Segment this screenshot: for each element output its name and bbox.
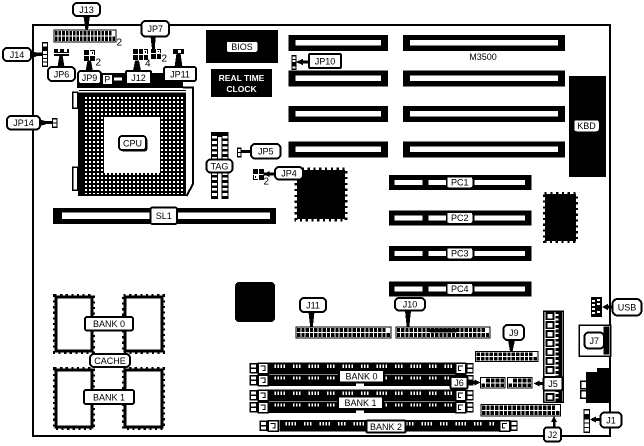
svg-text:JP9: JP9 xyxy=(82,73,98,83)
svg-text:JP6: JP6 xyxy=(54,69,70,79)
svg-text:J2: J2 xyxy=(548,430,558,440)
svg-text:BANK 2: BANK 2 xyxy=(370,422,402,432)
svg-text:KBD: KBD xyxy=(577,121,596,131)
svg-text:2: 2 xyxy=(117,38,123,49)
svg-text:J12: J12 xyxy=(131,73,146,83)
svg-text:JP10: JP10 xyxy=(315,56,336,66)
svg-text:CLOCK: CLOCK xyxy=(226,84,257,94)
svg-text:P: P xyxy=(104,75,110,85)
svg-text:BANK 1: BANK 1 xyxy=(93,392,125,402)
svg-text:BANK 0: BANK 0 xyxy=(93,319,125,329)
svg-text:PC2: PC2 xyxy=(451,213,469,223)
svg-text:JP5: JP5 xyxy=(258,147,274,157)
svg-text:4: 4 xyxy=(145,59,151,70)
svg-text:PC3: PC3 xyxy=(451,249,469,259)
svg-text:J14: J14 xyxy=(10,50,25,60)
svg-text:CPU: CPU xyxy=(123,138,142,148)
svg-text:PC4: PC4 xyxy=(451,284,469,294)
svg-text:SL1: SL1 xyxy=(156,211,172,221)
svg-text:USB: USB xyxy=(618,303,637,313)
svg-text:BIOS: BIOS xyxy=(231,42,253,52)
svg-text:BANK 1: BANK 1 xyxy=(344,398,376,408)
svg-text:BANK 0: BANK 0 xyxy=(345,372,377,382)
svg-text:J13: J13 xyxy=(79,5,94,15)
svg-text:TAG: TAG xyxy=(211,161,229,171)
svg-text:REAL TIME: REAL TIME xyxy=(219,73,265,83)
svg-text:M3500: M3500 xyxy=(469,52,497,62)
svg-text:J6: J6 xyxy=(454,378,464,388)
svg-text:J10: J10 xyxy=(403,300,418,310)
svg-text:2: 2 xyxy=(162,54,168,65)
svg-text:J5: J5 xyxy=(548,379,558,389)
svg-text:2: 2 xyxy=(96,58,102,69)
svg-text:J9: J9 xyxy=(509,328,519,338)
svg-text:JP4: JP4 xyxy=(281,169,297,179)
svg-text:J11: J11 xyxy=(306,300,320,310)
svg-text:2: 2 xyxy=(264,177,270,188)
svg-text:J1: J1 xyxy=(606,415,616,425)
svg-text:CACHE: CACHE xyxy=(94,356,126,366)
svg-text:JP14: JP14 xyxy=(13,118,34,128)
svg-text:J7: J7 xyxy=(589,336,599,346)
svg-text:JP7: JP7 xyxy=(147,24,163,34)
svg-text:PC1: PC1 xyxy=(451,178,469,188)
svg-text:JP11: JP11 xyxy=(170,69,190,79)
